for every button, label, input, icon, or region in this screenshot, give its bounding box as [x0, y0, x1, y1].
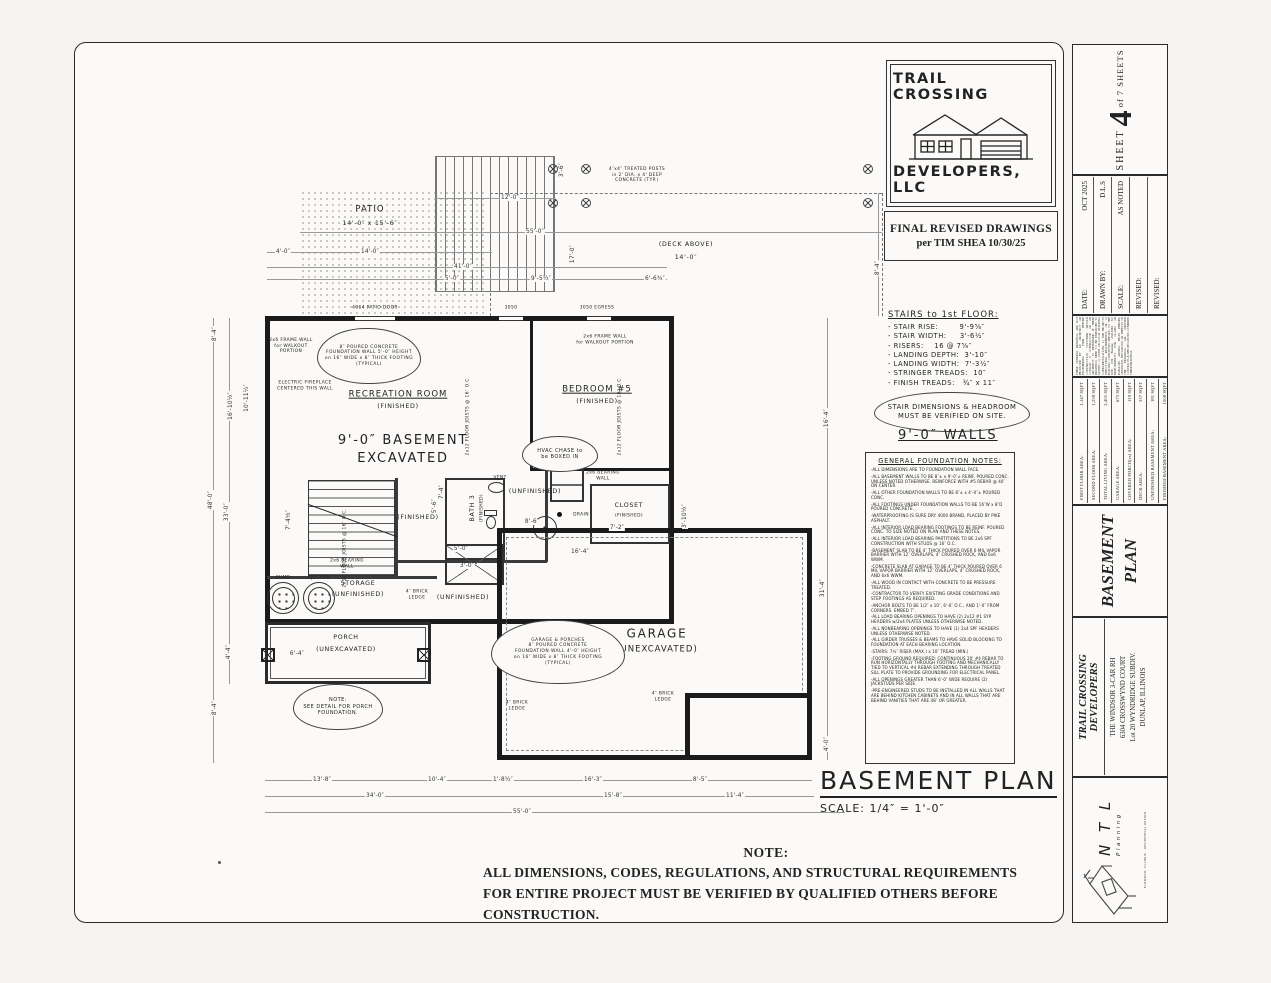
plan-label: 4″ BRICK LEDGE — [506, 701, 528, 712]
company-logo-inner: TRAIL CROSSING DEVELOPERS, LLC — [890, 64, 1052, 203]
porch-post-footing — [261, 648, 275, 662]
plan-label: GARAGE — [626, 627, 687, 642]
foundation-note: -ALL FOOTINGS UNDER FOUNDATION WALLS TO … — [871, 503, 1009, 512]
foundation-note: -ALL GIRDER TRUSSES & BEAMS TO HAVE SOLI… — [871, 638, 1009, 647]
area-row: TOTAL LIVING AREA: 2,405 SQFT — [1100, 379, 1112, 503]
area-label: GARAGE AREA: — [1115, 465, 1120, 500]
plan-label: 14'-0″ x 15'-6″ — [343, 220, 398, 228]
ntl-logo-subtitle: Planning — [1116, 798, 1122, 856]
plan-label: 2x6 BEARING WALL — [330, 559, 364, 570]
dimension-line — [265, 780, 812, 781]
meta-row: REVISED: — [1130, 177, 1148, 313]
plan-label: CLOSET — [615, 502, 644, 510]
foundation-note: -ALL DIMENSIONS ARE TO FOUNDATION WALL F… — [871, 468, 1009, 473]
dimension-label: 16'-10½″ — [228, 391, 234, 421]
revision-cloud: HVAC CHASE to be BOXED IN — [522, 436, 598, 472]
deck-post-icon — [548, 198, 558, 208]
revision-line-1: FINAL REVISED DRAWINGS — [890, 223, 1052, 235]
sheet-number-box: SHEET 4 of 7 SHEETS — [1072, 44, 1168, 175]
sheet-me­ta-rows: DATE: OCT 2025 DRAWN BY: D.L.S SCALE: AS… — [1076, 177, 1164, 313]
meta-row: DATE: OCT 2025 — [1076, 177, 1094, 313]
plan-label: (FINISHED) — [615, 513, 643, 519]
sheet-number: 4 — [1102, 110, 1139, 126]
deck-post-icon — [863, 164, 873, 174]
garage-step-outline — [685, 693, 812, 760]
scan-speck — [218, 861, 221, 864]
deck-edge-line — [882, 193, 883, 316]
company-name-bottom: DEVELOPERS, LLC — [893, 164, 1049, 196]
dimension-label: 3'-0″ — [459, 563, 475, 569]
sheet-label: SHEET — [1115, 129, 1126, 170]
side-plan-title-box: BASEMENT PLAN — [1072, 505, 1168, 617]
dimension-label: 17'-0″ — [570, 244, 576, 264]
plan-label: 2x6 FRAME WALL for WALKOUT PORTION — [269, 338, 313, 355]
meta-row: DRAWN BY: D.L.S — [1094, 177, 1112, 313]
area-label: COVERED PORCH(es) AREA: — [1127, 438, 1132, 500]
foundation-note: -ALL BASEMENT WALLS TO BE 8″± x 9'-0″± R… — [871, 475, 1009, 489]
dimension-label: 3'-6″ — [559, 162, 565, 178]
dimension-label: 31'-4″ — [820, 578, 826, 598]
foundation-note: -STAIRS: 7¾″ RISER (MAX.) x 10″ TREAD (M… — [871, 650, 1009, 655]
stairs-note-line: - RISERS: 16 @ 7⅝″ — [888, 342, 1026, 351]
plan-label: RECREATION ROOM — [349, 390, 448, 401]
plan-label: STORAGE — [341, 580, 376, 588]
dimension-label: 15'-8″ — [603, 793, 623, 799]
dimension-label: 6'-6¾″ — [644, 276, 666, 282]
dimension-label: 8'-4″ — [212, 326, 218, 342]
stair-wall — [395, 478, 398, 578]
area-value: 673 SQFT — [1115, 382, 1120, 402]
sink-icon — [488, 482, 505, 493]
dimension-line — [878, 193, 879, 316]
furnace-unit — [550, 468, 584, 502]
meta-value: AS NOTED — [1117, 181, 1125, 215]
plan-label: DRAIN — [573, 512, 589, 518]
company-logo-box: TRAIL CROSSING DEVELOPERS, LLC — [886, 60, 1056, 207]
basement-floor-plan: PATIO14'-0″ x 15'-6″(DECK ABOVE)14'-0″4″… — [205, 148, 885, 820]
area-label: FINISHED BASEMENT AREA: — [1162, 437, 1167, 500]
dimension-line — [435, 198, 555, 199]
plan-label: EJECTOR — [308, 575, 330, 581]
toilet-bowl-icon — [486, 516, 496, 529]
dimension-label: 55'-0″ — [512, 809, 532, 815]
dimension-label: 34'-0″ — [365, 793, 385, 799]
drafting-table-icon — [1080, 862, 1138, 918]
revision-cloud: 8″ POURED CONCRETE FOUNDATION WALL 5'-0″… — [317, 328, 421, 384]
stair-verify-cloud: STAIR DIMENSIONS & HEADROOM MUST BE VERI… — [874, 392, 1030, 432]
dimension-label: 16'-4″ — [570, 549, 590, 555]
plan-label: VENT — [493, 475, 506, 481]
project-line: THE WINDSOR 3-CAR RH — [1109, 619, 1119, 775]
area-value: 2,405 SQFT — [1103, 382, 1108, 406]
dimension-label: 9'-5½″ — [530, 276, 552, 282]
plan-label: (UNEXCAVATED) — [316, 646, 376, 654]
area-row: COVERED PORCH(es) AREA: 119 SQFT — [1124, 379, 1136, 503]
dimension-label: 3'-10½″ — [682, 503, 688, 529]
area-value: 1,258 SQFT — [1091, 382, 1096, 406]
plan-label: (UNFINISHED) — [437, 594, 489, 602]
foundation-note: -ANCHOR BOLTS TO BE 1/2″ x 10″, 6'-0″ O.… — [871, 604, 1009, 613]
project-info-box: TRAIL CROSSING DEVELOPERS THE WINDSOR 3-… — [1072, 617, 1168, 777]
ejector-pit-icon — [303, 582, 335, 614]
project-line: 6304 CROSSWYND COURT — [1119, 619, 1129, 775]
general-note-heading: NOTE: — [483, 845, 1049, 861]
dimension-label: 4'-0″ — [824, 736, 830, 752]
foundation-note: -CONTRACTOR TO VERIFY EXISTING GRADE CON… — [871, 592, 1009, 601]
disclaimer-box: THESE GENERAL DRAWINGS ARE NOT PRODUCED … — [1072, 315, 1168, 377]
dimension-label: 33'-0″ — [224, 502, 230, 522]
stairs-notes-block: STAIRS to 1st FLOOR: - STAIR RISE: 9'-9⅝… — [888, 310, 1026, 388]
foundation-note: -ALL INTERIOR LOAD BEARING PARTITIONS TO… — [871, 537, 1009, 546]
foundation-notes-heading: GENERAL FOUNDATION NOTES: — [871, 457, 1009, 465]
area-table: FIRST FLOOR AREA: 1,147 SQFT SECOND FLOO… — [1076, 379, 1164, 503]
plan-label: 14'-0″ — [675, 254, 698, 262]
foundation-note: -BASEMENT SLAB TO BE 4″ THICK POURED OVE… — [871, 549, 1009, 563]
revision-cloud: GARAGE & PORCHES 8″ POURED CONCRETE FOUN… — [491, 620, 625, 684]
plan-label: (FINISHED) — [576, 398, 618, 406]
foundation-note: -ALL OTHER FOUNDATION WALLS TO BE 8″± x … — [871, 491, 1009, 500]
dimension-label: 13'-8″ — [312, 777, 332, 783]
dimension-label: 8'-4″ — [212, 700, 218, 716]
dimension-label: 14'-0″ — [360, 249, 380, 255]
dimension-label: 8'-4″ — [875, 260, 881, 276]
meta-row: SCALE: AS NOTED — [1112, 177, 1130, 313]
plan-label: 4″ BRICK LEDGE — [406, 590, 428, 601]
meta-value: D.L.S — [1099, 181, 1107, 198]
side-plan-title-2: PLAN — [1120, 507, 1143, 615]
dimension-label: 16'-3″ — [583, 777, 603, 783]
floor-drain-icon — [557, 512, 562, 517]
area-row: UNFINISHED BASEMENT AREA: 181 SQFT — [1147, 379, 1159, 503]
sump-pit-icon — [267, 582, 299, 614]
dimension-label: 4'-4″ — [226, 644, 232, 660]
project-line: Lot 20 WYNDRIDGE SUBDIV. — [1129, 619, 1139, 775]
plan-label: PATIO — [355, 205, 384, 216]
ntl-logo-box: N T L Planning ELMWOOD, ILLINOIS · RESID… — [1072, 777, 1168, 923]
dimension-label: 48'-0″ — [208, 490, 214, 510]
dimension-label: 8'-6″ — [524, 519, 540, 525]
dimension-label: 7'-2″ — [609, 525, 625, 531]
porch-post-footing — [417, 648, 431, 662]
dimension-label: 12'-0″ — [500, 195, 520, 201]
plan-label: 2x12 FLOOR JOISTS @ 16″ O.C. — [617, 377, 623, 456]
deck-post-icon — [863, 198, 873, 208]
scanned-drawing-page: TRAIL CROSSING DEVELOPERS, LLC — [0, 0, 1271, 983]
disclaimer-text: THESE GENERAL DRAWINGS ARE NOT PRODUCED … — [1076, 317, 1164, 375]
area-table-box: FIRST FLOOR AREA: 1,147 SQFT SECOND FLOO… — [1072, 377, 1168, 505]
foundation-note: -ALL LOAD BEARING OPENINGS TO HAVE (2) 2… — [871, 615, 1009, 624]
meta-label: SCALE: — [1117, 285, 1125, 309]
plan-label: 4″ BRICK LEDGE — [652, 692, 674, 703]
stairs-note-line: - STAIR WIDTH: 3'-6½″ — [888, 332, 1026, 341]
sheet-of-label: of 7 SHEETS — [1115, 49, 1125, 107]
deck-edge-line — [490, 193, 491, 316]
plan-label: 2x12 FLOOR JOISTS @ 16″ O.C. — [465, 377, 471, 456]
dimension-label: 1'-8½″ — [492, 777, 514, 783]
plan-label: 3050 EGRESS — [580, 305, 615, 311]
ntl-logo-name: N T L — [1096, 798, 1114, 856]
dimension-label: 8'-5″ — [692, 777, 708, 783]
foundation-notes-box: GENERAL FOUNDATION NOTES: -ALL DIMENSION… — [865, 452, 1015, 764]
stairs-note-line: - LANDING WIDTH: 7'-3½″ — [888, 360, 1026, 369]
area-row: SECOND FLOOR AREA: 1,258 SQFT — [1088, 379, 1100, 503]
foundation-note: -ALL OPENINGS GREATER THAN 6'-0″ WIDE RE… — [871, 678, 1009, 687]
foundation-note: -ALL INTERIOR LOAD BEARING FOOTINGS TO B… — [871, 526, 1009, 535]
wall-height-note: 9'-0″ WALLS — [898, 428, 998, 443]
area-row: GARAGE AREA: 673 SQFT — [1112, 379, 1124, 503]
plan-label: (DECK ABOVE) — [659, 241, 713, 249]
area-value: 337 SQFT — [1138, 382, 1143, 402]
dimension-label: 5'-6″ — [432, 498, 438, 514]
meta-label: REVISED: — [1135, 278, 1143, 310]
dimension-label: 7'-4″ — [439, 484, 445, 500]
dimension-label: 41'-0″ — [453, 264, 473, 270]
area-label: SECOND FLOOR AREA: — [1091, 449, 1096, 500]
area-label: DECK AREA: — [1138, 472, 1143, 500]
dimension-label: 10'-11¼″ — [244, 383, 250, 413]
plan-label: 3050 — [505, 305, 518, 311]
area-value: 181 SQFT — [1150, 382, 1155, 402]
plan-label: (FINISHED) — [377, 403, 419, 411]
area-label: FIRST FLOOR AREA: — [1079, 455, 1084, 500]
plan-label: (UNEXCAVATED) — [616, 645, 698, 656]
plan-label: SUMP — [276, 575, 290, 581]
area-label: UNFINISHED BASEMENT AREA: — [1150, 430, 1155, 500]
plan-label: (UNFINISHED) — [332, 591, 384, 599]
plan-label: 2x6 FRAME WALL for WALKOUT PORTION — [576, 335, 634, 346]
dimension-label: 6'-4″ — [289, 651, 305, 657]
project-line: DUNLAP, ILLINOIS — [1139, 619, 1149, 775]
plan-label: (UNFINISHED) — [509, 488, 561, 496]
plan-label: ELECTRIC FIREPLACE CENTERED THIS WALL — [277, 381, 333, 392]
foundation-note: -ALL NONBEARING OPENINGS TO HAVE (1) 2x4… — [871, 627, 1009, 636]
dimension-label: 55'-0″ — [525, 229, 545, 235]
deck-edge-line — [490, 193, 882, 194]
plan-label: 4064 PATIO DOOR — [352, 305, 398, 311]
plan-label: 2x6 BEARING WALL — [586, 471, 620, 482]
dimension-line — [267, 279, 667, 280]
dimension-label: 16'-4″ — [824, 408, 830, 428]
patio-door-opening — [355, 316, 395, 321]
meta-row: REVISED: — [1148, 177, 1165, 313]
dimension-label: 5'-0″ — [444, 276, 460, 282]
plan-label: (FINISHED) — [479, 494, 485, 522]
area-row: DECK AREA: 337 SQFT — [1135, 379, 1147, 503]
dimension-line — [213, 318, 214, 763]
sheet-meta-box: DATE: OCT 2025 DRAWN BY: D.L.S SCALE: AS… — [1072, 175, 1168, 315]
area-row: FIRST FLOOR AREA: 1,147 SQFT — [1076, 379, 1088, 503]
window-opening — [499, 316, 523, 321]
area-row: FINISHED BASEMENT AREA: 1008 SQFT — [1159, 379, 1170, 503]
plan-label: EXCAVATED — [357, 451, 449, 467]
project-lines: THE WINDSOR 3-CAR RH6304 CROSSWYND COURT… — [1109, 619, 1149, 775]
foundation-note: -FOOTING GROUND REQUIRED: CONTINUOUS 20'… — [871, 657, 1009, 676]
dimension-line — [827, 318, 828, 760]
deck-post-icon — [581, 164, 591, 174]
area-value: 1,147 SQFT — [1079, 382, 1084, 406]
dimension-line — [265, 812, 845, 813]
revision-note-box: FINAL REVISED DRAWINGS per TIM SHEA 10/3… — [884, 211, 1058, 261]
dimension-label: 5'-0″ — [453, 546, 469, 552]
area-value: 119 SQFT — [1127, 382, 1132, 402]
general-note-block: NOTE: ALL DIMENSIONS, CODES, REGULATIONS… — [483, 845, 1049, 926]
foundation-note: -ALL WOOD IN CONTACT WITH CONCRETE TO BE… — [871, 581, 1009, 590]
meta-label: REVISED: — [1153, 278, 1161, 310]
area-label: TOTAL LIVING AREA: — [1103, 452, 1108, 500]
developer-name: TRAIL CROSSING DEVELOPERS — [1076, 619, 1105, 775]
plan-label: PORCH — [333, 634, 358, 642]
deck-stairs — [435, 156, 555, 292]
plan-label: 2x12 FLOOR JOISTS @ 16″ O.C. — [342, 509, 348, 588]
foundation-note: -PRE-ENGINEERED STUDS TO BE INSTALLED IN… — [871, 689, 1009, 703]
stairs-notes-list: - STAIR RISE: 9'-9⅝″- STAIR WIDTH: 3'-6½… — [888, 323, 1026, 388]
area-value: 1008 SQFT — [1162, 382, 1167, 404]
egress-window-opening — [587, 316, 611, 321]
foundation-notes-list: -ALL DIMENSIONS ARE TO FOUNDATION WALL F… — [871, 468, 1009, 703]
meta-label: DATE: — [1081, 289, 1089, 309]
meta-value: OCT 2025 — [1081, 181, 1089, 211]
storage-bearing-wall — [267, 576, 437, 579]
dimension-label: 11'-4″ — [725, 793, 745, 799]
side-plan-title-1: BASEMENT — [1097, 507, 1120, 615]
stairs-note-line: - STAIR RISE: 9'-9⅝″ — [888, 323, 1026, 332]
house-logo-icon — [905, 105, 1037, 163]
dimension-label: 4'-0″ — [275, 249, 291, 255]
plan-label: BATH 3 — [469, 495, 477, 522]
dimension-line — [300, 232, 882, 233]
plan-label: (FINISHED) — [397, 514, 439, 522]
deck-post-icon — [548, 164, 558, 174]
ntl-logo-fineprint: ELMWOOD, ILLINOIS · RESIDENTIAL DESIGN — [1143, 780, 1147, 920]
stairs-note-line: - LANDING DEPTH: 3'-10″ — [888, 351, 1026, 360]
revision-cloud: NOTE: SEE DETAIL FOR PORCH FOUNDATION. — [293, 684, 383, 730]
company-name-top: TRAIL CROSSING — [893, 71, 1049, 103]
deck-post-icon — [581, 198, 591, 208]
dimension-label: 10'-4″ — [427, 777, 447, 783]
plan-label: 4″x4″ TREATED POSTS in 2' DIA. x 4' DEEP… — [609, 167, 665, 184]
revision-line-2: per TIM SHEA 10/30/25 — [916, 238, 1025, 249]
general-note-body: ALL DIMENSIONS, CODES, REGULATIONS, AND … — [483, 863, 1049, 926]
foundation-note: -CONCRETE SLAB AT GARAGE TO BE 4″ THICK … — [871, 565, 1009, 579]
stairs-note-line: - FINISH TREADS: ¾″ x 11″ — [888, 379, 1026, 388]
meta-label: DRAWN BY: — [1099, 270, 1107, 309]
stairs-notes-heading: STAIRS to 1st FLOOR: — [888, 310, 1026, 320]
foundation-note: -WATERPROOFING IS SURE DRY 4000 BRAND, P… — [871, 514, 1009, 523]
dimension-label: 7'-4½″ — [286, 509, 292, 531]
wall-top — [265, 316, 674, 321]
plan-label: 9'-0″ BASEMENT — [338, 433, 468, 449]
stairs-note-line: - STRINGER TREADS: 10″ — [888, 369, 1026, 378]
